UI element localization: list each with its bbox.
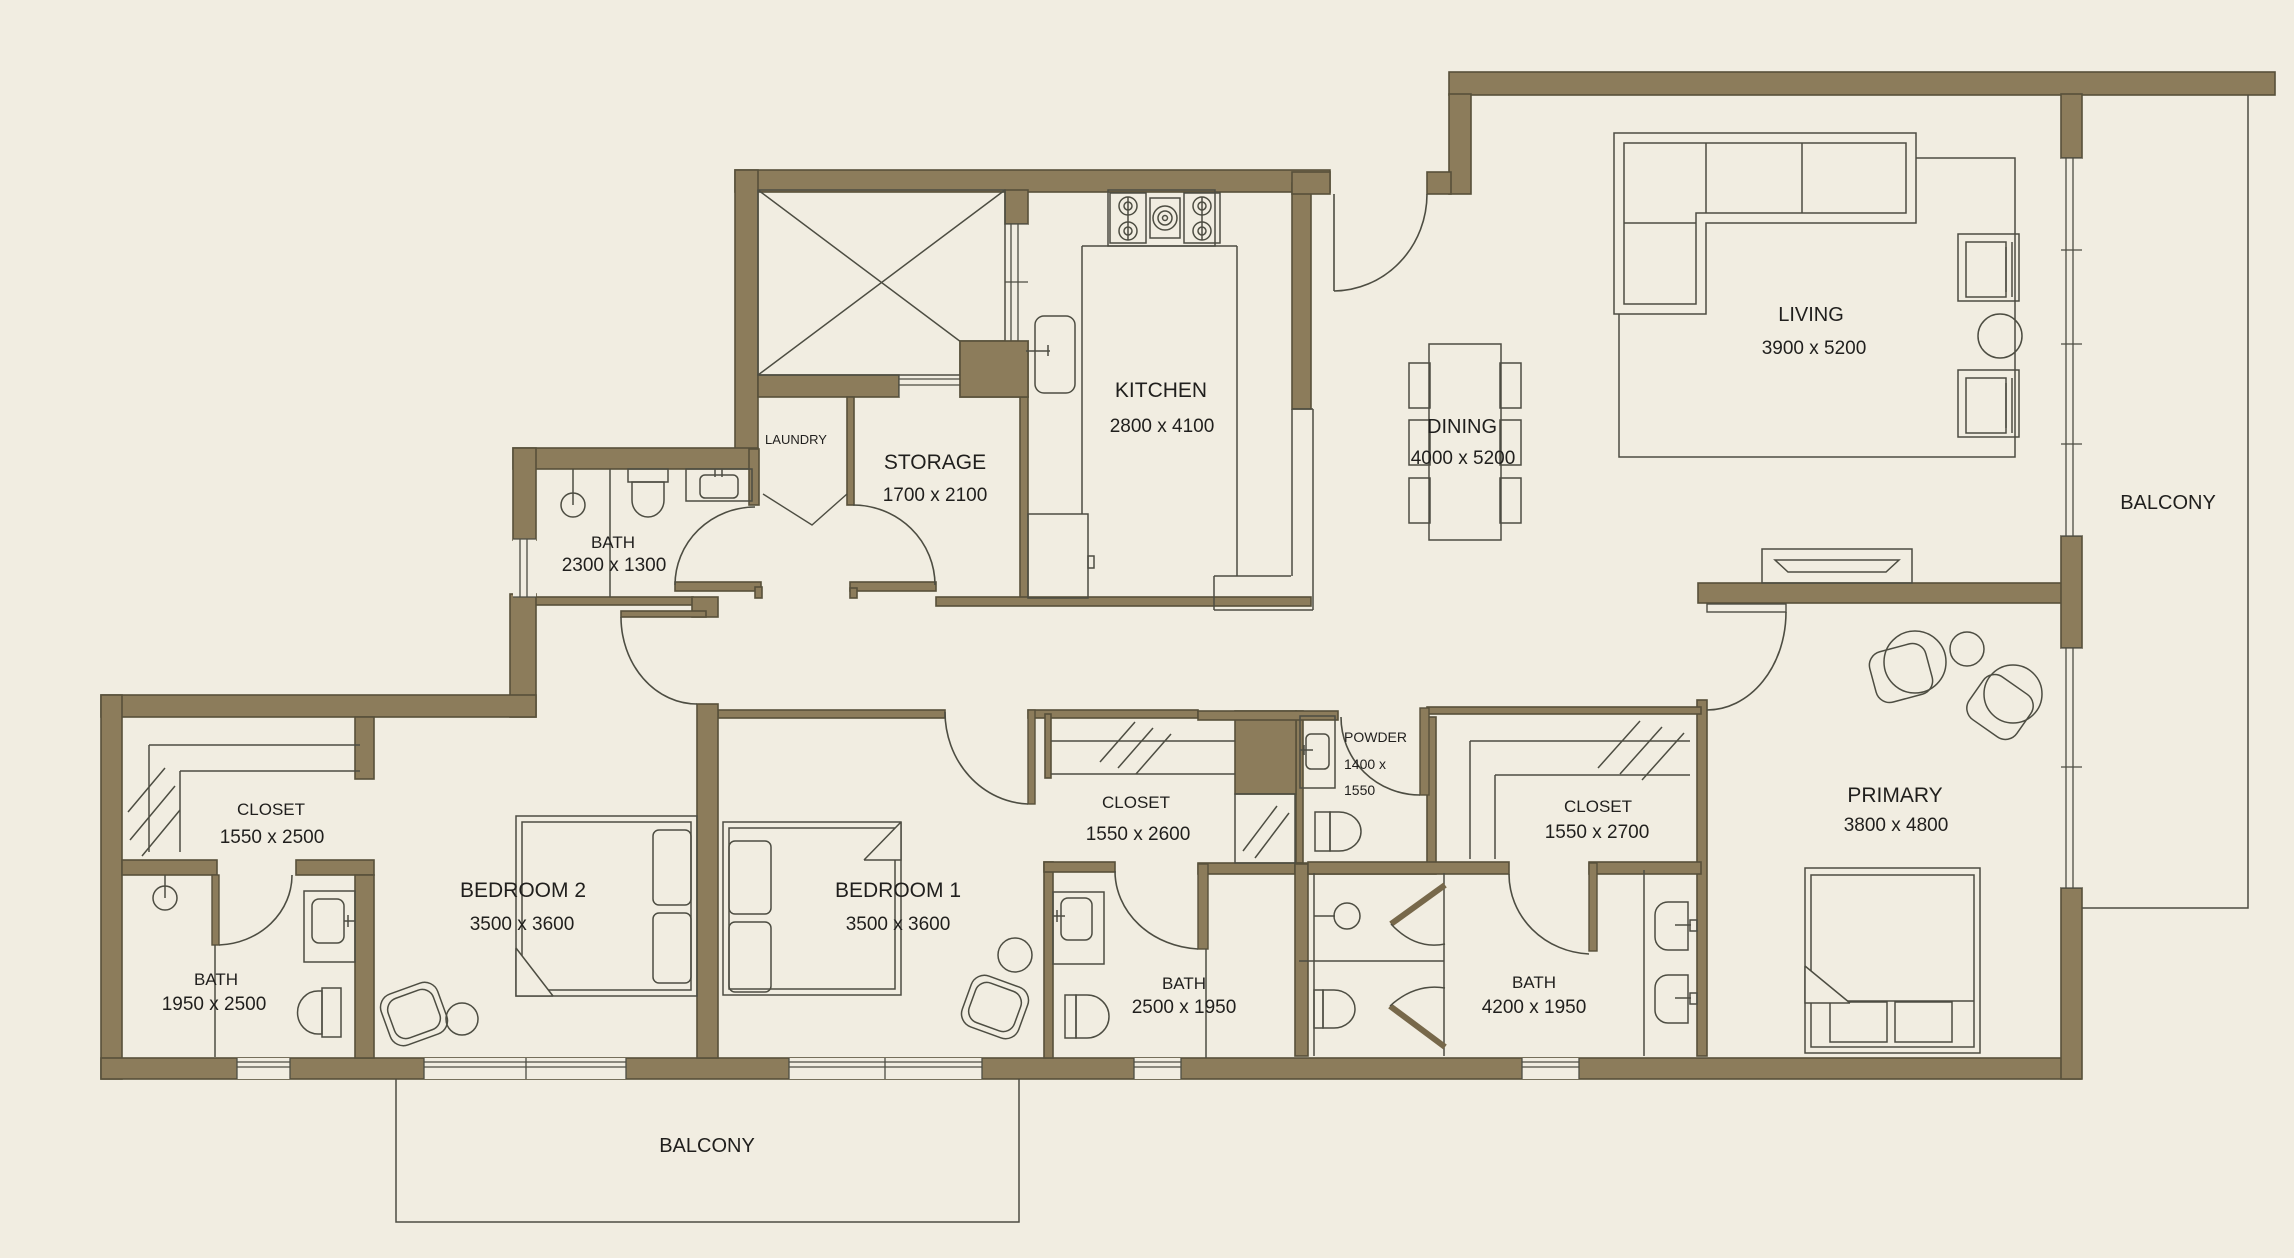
svg-text:3900 x 5200: 3900 x 5200 — [1762, 338, 1867, 359]
svg-text:STORAGE: STORAGE — [884, 451, 986, 474]
svg-text:BALCONY: BALCONY — [659, 1135, 755, 1157]
svg-text:2500 x 1950: 2500 x 1950 — [1132, 997, 1237, 1018]
svg-text:BEDROOM 2: BEDROOM 2 — [460, 879, 586, 902]
svg-text:POWDER: POWDER — [1344, 729, 1407, 745]
svg-text:BEDROOM 1: BEDROOM 1 — [835, 879, 961, 902]
svg-text:4000 x 5200: 4000 x 5200 — [1411, 448, 1516, 469]
svg-text:BATH: BATH — [1162, 974, 1206, 993]
svg-text:2300 x 1300: 2300 x 1300 — [562, 555, 667, 576]
svg-text:CLOSET: CLOSET — [1102, 793, 1170, 812]
svg-text:1700 x 2100: 1700 x 2100 — [883, 485, 988, 506]
svg-text:3500 x 3600: 3500 x 3600 — [846, 914, 951, 935]
svg-text:1950 x 2500: 1950 x 2500 — [162, 994, 267, 1015]
svg-text:2800 x 4100: 2800 x 4100 — [1110, 416, 1215, 437]
svg-text:1550 x 2700: 1550 x 2700 — [1545, 822, 1650, 843]
svg-text:1550: 1550 — [1344, 782, 1375, 798]
svg-text:BALCONY: BALCONY — [2120, 492, 2216, 514]
svg-text:1550 x 2600: 1550 x 2600 — [1086, 824, 1191, 845]
svg-text:4200 x 1950: 4200 x 1950 — [1482, 997, 1587, 1018]
svg-text:3800 x 4800: 3800 x 4800 — [1844, 815, 1949, 836]
svg-text:CLOSET: CLOSET — [1564, 797, 1632, 816]
svg-text:LAUNDRY: LAUNDRY — [765, 432, 827, 447]
svg-text:1400 x: 1400 x — [1344, 756, 1386, 772]
svg-text:BATH: BATH — [591, 533, 635, 552]
svg-text:1550 x 2500: 1550 x 2500 — [220, 827, 325, 848]
svg-text:PRIMARY: PRIMARY — [1847, 784, 1942, 807]
svg-text:DINING: DINING — [1427, 416, 1497, 438]
svg-text:LIVING: LIVING — [1778, 304, 1844, 326]
svg-text:BATH: BATH — [1512, 973, 1556, 992]
svg-text:3500 x 3600: 3500 x 3600 — [470, 914, 575, 935]
svg-text:CLOSET: CLOSET — [237, 800, 305, 819]
svg-text:KITCHEN: KITCHEN — [1115, 379, 1207, 402]
svg-text:BATH: BATH — [194, 970, 238, 989]
